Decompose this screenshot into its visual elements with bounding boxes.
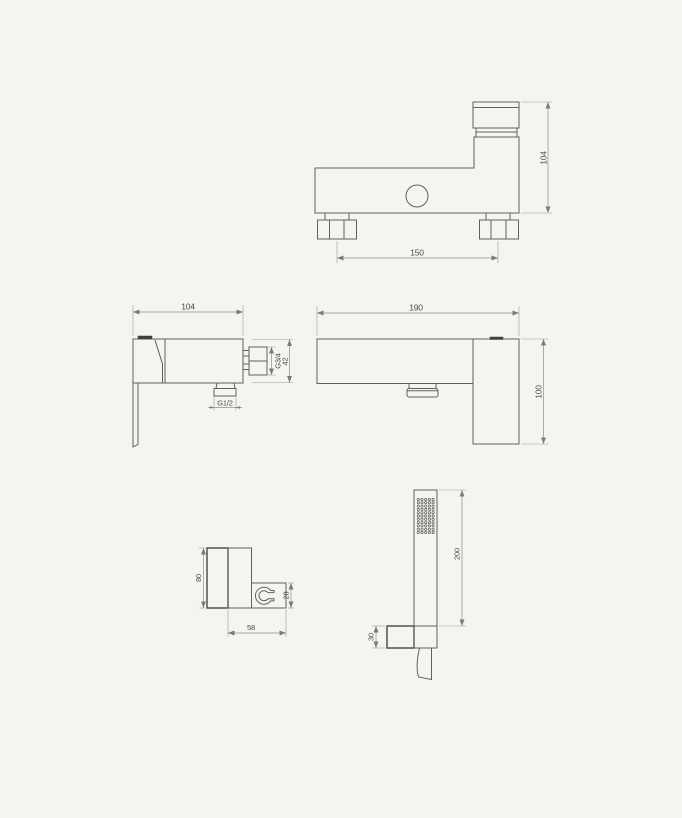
spray-nozzle-dot: [428, 531, 430, 533]
bracket-dim-width: 58: [228, 610, 286, 637]
spray-nozzle-dot: [421, 528, 423, 530]
hand-shower-dim-30-label: 30: [367, 633, 376, 641]
hand-shower-dim-holder: 30: [367, 626, 386, 648]
plan-right-hex-nut: [480, 220, 519, 239]
spray-nozzle-dot: [417, 521, 419, 523]
spray-nozzle-dot: [428, 515, 430, 517]
spray-nozzle-dot: [421, 502, 423, 504]
hand-shower-holder: [387, 626, 414, 648]
spray-nozzle-dot: [428, 498, 430, 500]
spray-nozzle-dot: [425, 498, 427, 500]
hand-shower-view: 200 30: [367, 490, 467, 680]
spray-nozzle-dot: [432, 508, 434, 510]
front-top-tab: [490, 337, 503, 340]
spray-nozzle-dot: [417, 528, 419, 530]
spray-nozzle-dot: [432, 525, 434, 527]
spray-nozzle-dot: [425, 521, 427, 523]
front-body-bar: [317, 339, 473, 384]
side-top-tab: [138, 336, 152, 339]
plan-view: 150 104: [315, 102, 552, 263]
spray-nozzle-dot: [425, 505, 427, 507]
spray-nozzle-dot: [428, 525, 430, 527]
plan-left-hex-nut: [318, 220, 357, 239]
spray-nozzle-dot: [425, 515, 427, 517]
side-view: G3/4 42 104 G1/2: [133, 302, 293, 448]
front-body-column: [473, 339, 519, 444]
spray-nozzle-dot: [432, 502, 434, 504]
spray-nozzle-dot: [421, 512, 423, 514]
spray-nozzle-dot: [428, 518, 430, 520]
spray-nozzle-dot: [425, 508, 427, 510]
spray-nozzle-dot: [421, 498, 423, 500]
spray-nozzle-dot: [428, 505, 430, 507]
spray-nozzle-dot: [428, 528, 430, 530]
spray-nozzle-dot: [417, 515, 419, 517]
side-lever-handle: [133, 383, 138, 447]
side-dim-inlet-thread: G1/2: [208, 396, 242, 411]
spray-nozzle-dot: [421, 518, 423, 520]
front-dim-190-label: 190: [409, 303, 423, 313]
bracket-dim-clip-height: 28: [282, 583, 295, 608]
hand-shower-hose: [417, 648, 431, 680]
spray-nozzle-dot: [425, 531, 427, 533]
spray-nozzle-dot: [417, 502, 419, 504]
spray-nozzle-dot: [417, 512, 419, 514]
spray-nozzle-dot: [432, 531, 434, 533]
side-g12-label: G1/2: [217, 399, 232, 408]
spray-nozzle-dot: [428, 521, 430, 523]
spray-nozzle-dot: [417, 505, 419, 507]
spray-nozzle-dot: [425, 512, 427, 514]
side-dim-104-label: 104: [181, 302, 195, 312]
spray-nozzle-dot: [432, 512, 434, 514]
spray-nozzle-dot: [428, 512, 430, 514]
faucet-technical-drawing: 150 104 G3/4: [0, 0, 682, 818]
bracket-dim-28-label: 28: [282, 592, 291, 600]
side-body: [133, 339, 243, 383]
spray-nozzle-dot: [432, 498, 434, 500]
bracket-dim-height: 80: [194, 548, 205, 608]
spray-nozzle-dot: [432, 521, 434, 523]
side-outlet-connector: [249, 347, 267, 375]
front-dim-height: 100: [521, 339, 548, 444]
hand-shower-dim-200-label: 200: [453, 548, 462, 560]
spray-nozzle-dot: [417, 498, 419, 500]
plan-body: [315, 137, 519, 213]
bracket-dim-58-label: 58: [247, 623, 255, 632]
plan-dim-inlet-spacing: 150: [337, 241, 498, 263]
spray-nozzle-dot: [425, 502, 427, 504]
plan-diverter-circle: [406, 185, 428, 207]
spray-nozzle-dot: [432, 505, 434, 507]
spray-nozzle-dot: [428, 508, 430, 510]
side-dim-42-label: 42: [281, 358, 290, 366]
plan-handle-knob: [473, 102, 519, 128]
side-inlet-connector: [214, 383, 236, 396]
front-spout: [407, 384, 438, 398]
spray-nozzle-dot: [432, 515, 434, 517]
hand-shower-holder-socket: [414, 626, 437, 648]
front-dim-width: 190: [317, 303, 519, 337]
bracket-view: 80 28 58: [194, 548, 294, 637]
spray-nozzle-dot: [432, 528, 434, 530]
plan-dim-104-label: 104: [539, 151, 549, 165]
spray-nozzle-dot: [421, 531, 423, 533]
spray-nozzle-dot: [421, 521, 423, 523]
front-view: 190 100: [317, 303, 548, 445]
side-dim-depth: 104: [133, 302, 243, 337]
bracket-dim-80-label: 80: [194, 574, 203, 582]
spray-nozzle-dot: [421, 515, 423, 517]
hand-shower-spray-face: [417, 498, 434, 533]
spray-nozzle-dot: [425, 518, 427, 520]
spray-nozzle-dot: [421, 525, 423, 527]
spray-nozzle-dot: [421, 508, 423, 510]
spray-nozzle-dot: [417, 531, 419, 533]
bracket-c-clip: [255, 587, 274, 604]
spray-nozzle-dot: [417, 525, 419, 527]
spray-nozzle-dot: [421, 505, 423, 507]
drawing-canvas: 150 104 G3/4: [0, 0, 682, 818]
hand-shower-dim-length: 200: [439, 490, 466, 626]
bracket-body: [228, 548, 252, 608]
spray-nozzle-dot: [425, 525, 427, 527]
plan-dim-150-label: 150: [410, 248, 424, 258]
spray-nozzle-dot: [425, 528, 427, 530]
spray-nozzle-dot: [432, 518, 434, 520]
plan-dim-height: 104: [521, 102, 552, 213]
spray-nozzle-dot: [417, 508, 419, 510]
bracket-wall-plate: [207, 548, 228, 608]
front-dim-100-label: 100: [534, 385, 544, 399]
spray-nozzle-dot: [428, 502, 430, 504]
spray-nozzle-dot: [417, 518, 419, 520]
